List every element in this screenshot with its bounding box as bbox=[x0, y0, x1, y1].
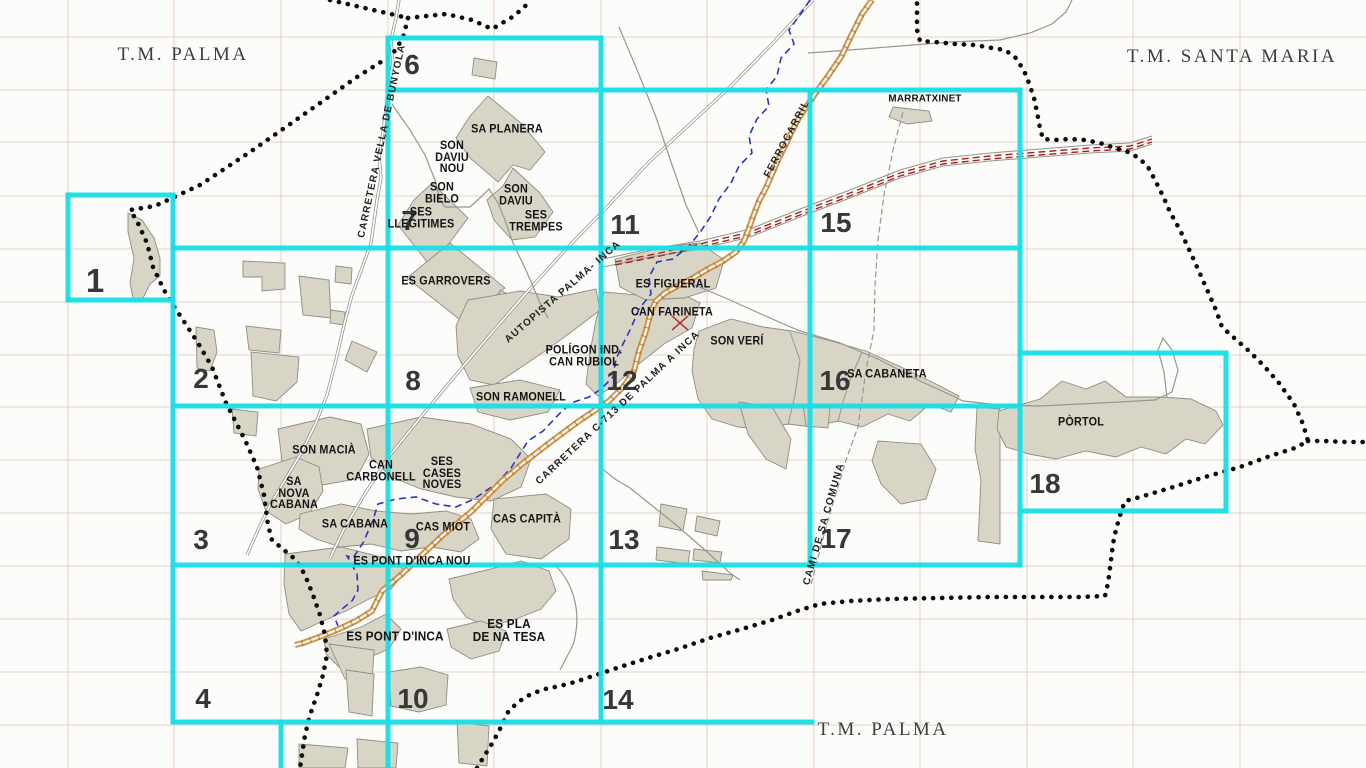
place-label-poligon-can-rubiol: POLÍGON IND. CAN RUBIOL bbox=[546, 346, 623, 369]
tm-label-palma-top: T.M. PALMA bbox=[117, 44, 248, 66]
place-label-sa-nova-cabana: SA NOVA CABANA bbox=[270, 477, 318, 512]
place-label-es-pont-dinca-nou: ES PONT D'INCA NOU bbox=[353, 556, 470, 568]
place-label-son-veri: SON VERÍ bbox=[710, 336, 763, 348]
sheet-number-11: 11 bbox=[610, 209, 640, 241]
place-label-sa-cabaneta: SA CABANETA bbox=[847, 369, 927, 381]
sheet-number-1: 1 bbox=[86, 262, 104, 300]
sheet-number-6: 6 bbox=[404, 49, 420, 81]
place-label-ses-cases-noves: SES CASES NOVES bbox=[423, 457, 462, 492]
sheet-number-16: 16 bbox=[819, 365, 850, 397]
place-label-ses-trempes: SES TREMPES bbox=[509, 211, 563, 234]
sheet-number-8: 8 bbox=[405, 365, 421, 397]
place-label-can-farineta: CAN FARINETA bbox=[631, 307, 713, 319]
place-label-son-daviu-nou: SON DAVIU NOU bbox=[435, 141, 469, 176]
place-label-ses-llegitimes: SES LLEGITIMES bbox=[388, 208, 455, 231]
sheet-number-15: 15 bbox=[820, 207, 851, 239]
place-label-son-daviu: SON DAVIU bbox=[499, 185, 533, 208]
place-label-can-carbonell: CAN CARBONELL bbox=[346, 461, 416, 484]
place-label-portol: PÒRTOL bbox=[1058, 417, 1104, 429]
urban-areas bbox=[128, 58, 1223, 768]
tm-label-palma-bottom: T.M. PALMA bbox=[817, 719, 948, 741]
place-label-es-pla-de-na-tesa: ES PLA DE NA TESA bbox=[473, 618, 546, 644]
place-label-es-figueral: ES FIGUERAL bbox=[636, 279, 711, 291]
place-label-son-ramonell: SON RAMONELL bbox=[476, 392, 566, 404]
place-label-son-bielo: SON BIELO bbox=[425, 183, 459, 206]
sheet-number-10: 10 bbox=[397, 683, 428, 715]
place-label-son-macia: SON MACIÀ bbox=[292, 445, 356, 457]
sheet-number-3: 3 bbox=[193, 524, 209, 556]
municipal-map-index: 1 2 3 4 6 7 8 9 10 11 12 13 14 15 16 17 … bbox=[0, 0, 1366, 768]
place-label-sa-cabana: SA CABANA bbox=[322, 519, 388, 531]
place-label-cas-capita: CAS CAPITÀ bbox=[493, 514, 561, 526]
place-label-es-pont-dinca: ES PONT D'INCA bbox=[346, 631, 443, 643]
sheet-number-2: 2 bbox=[193, 363, 209, 395]
tm-label-santa-maria: T.M. SANTA MARIA bbox=[1127, 46, 1337, 68]
sheet-number-18: 18 bbox=[1029, 468, 1060, 500]
place-label-cas-miot: CAS MIOT bbox=[416, 522, 470, 534]
place-label-sa-planera: SA PLANERA bbox=[471, 124, 543, 136]
place-label-marratxinet: MARRATXINET bbox=[888, 93, 961, 105]
sheet-number-4: 4 bbox=[195, 683, 211, 715]
sheet-number-14: 14 bbox=[602, 684, 633, 716]
sheet-number-13: 13 bbox=[608, 524, 639, 556]
place-label-es-garrovers: ES GARROVERS bbox=[401, 276, 490, 288]
